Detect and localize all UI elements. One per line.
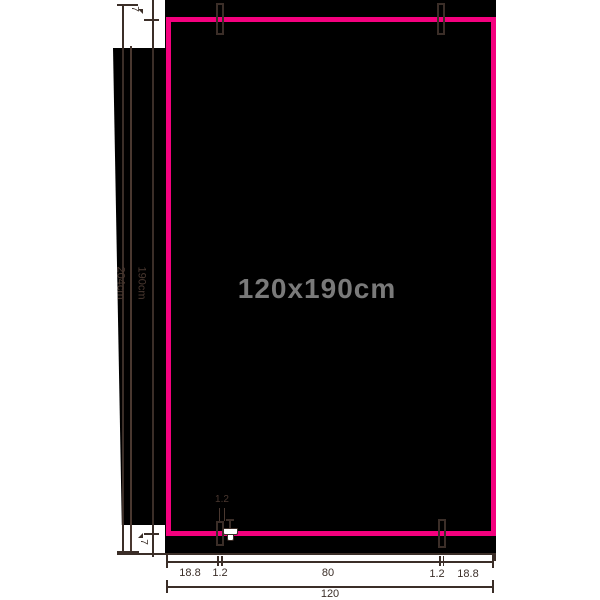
bottom-gap-label: 7 xyxy=(138,539,148,545)
segment-dim-rail-tick xyxy=(217,556,219,566)
dimension-arrow-icon xyxy=(138,9,143,14)
segment-dim-rail-tick xyxy=(443,556,445,566)
base-edge-corner-tick xyxy=(494,553,496,561)
rail-width-ext-line-right xyxy=(224,508,226,521)
segment-label-left-margin: 18.8 xyxy=(179,568,200,579)
segment-label-left-rail: 1.2 xyxy=(212,568,227,579)
segment-dim-rail-tick xyxy=(439,556,441,566)
clamp-icon-pin xyxy=(229,519,231,528)
segment-dim-end-tick-right xyxy=(492,555,494,568)
visible-height-bottom-tick xyxy=(144,533,159,535)
total-height-label: 204cm xyxy=(115,266,126,299)
base-edge-line xyxy=(117,553,496,555)
segment-dimension-line xyxy=(167,561,493,563)
total-height-dimension-line xyxy=(130,46,132,552)
segment-label-center: 80 xyxy=(322,568,334,579)
total-width-end-tick-left xyxy=(166,580,168,593)
rail-tick-rect-top-left xyxy=(216,3,224,35)
clamp-icon-stem xyxy=(227,535,234,541)
rail-width-label: 1.2 xyxy=(215,495,229,505)
segment-dim-rail-tick xyxy=(221,556,223,566)
dimension-arrow-icon xyxy=(138,533,143,538)
visible-height-dimension-line xyxy=(152,0,154,557)
segment-label-right-margin: 18.8 xyxy=(457,569,478,580)
visible-height-label: 190cm xyxy=(136,266,147,299)
banner-spec-diagram: 120x190cm 204cm 190cm 7 7 1.2 18.8 1.2 8… xyxy=(0,0,600,600)
rail-tick-rect-top-right xyxy=(437,3,445,35)
visible-height-top-tick xyxy=(144,19,159,21)
banner-size-label: 120x190cm xyxy=(238,273,396,305)
total-width-end-tick-right xyxy=(492,580,494,593)
segment-dim-end-tick-left xyxy=(166,555,168,568)
rail-width-ext-line-left xyxy=(219,508,221,521)
segment-label-right-rail: 1.2 xyxy=(429,569,444,580)
total-width-label: 120 xyxy=(321,589,339,600)
clamp-icon xyxy=(223,528,238,535)
rail-tick-rect-bottom-right xyxy=(438,519,446,548)
